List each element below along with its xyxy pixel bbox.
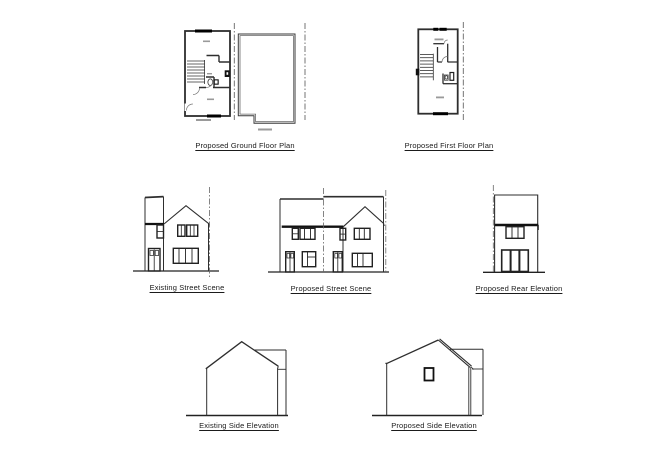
existing-side-elevation-figure xyxy=(183,333,293,425)
room-label-marks xyxy=(435,39,445,99)
roof xyxy=(145,206,209,226)
proposed-street-scene-figure xyxy=(263,185,393,280)
right-house-windows xyxy=(340,228,372,266)
ground-floor-plan-drawing xyxy=(178,14,310,132)
floor-plan-walls xyxy=(416,29,458,113)
door-swing-arc xyxy=(186,104,193,111)
proposed-rear-elevation-figure xyxy=(478,183,550,283)
rear-annex-outline xyxy=(450,349,483,415)
left-house-windows xyxy=(292,228,315,266)
caption-existing-street-scene: Existing Street Scene xyxy=(117,283,257,292)
existing-street-scene-figure xyxy=(130,183,225,283)
staircase xyxy=(420,54,433,81)
proposed-street-scene-drawing xyxy=(263,185,393,280)
rear-annex-outline xyxy=(254,350,286,416)
gable-outline xyxy=(385,339,471,416)
caption-proposed-rear-elevation: Proposed Rear Elevation xyxy=(449,284,589,293)
gable-outline xyxy=(206,342,278,416)
fixtures xyxy=(208,70,230,85)
caption-proposed-street-scene: Proposed Street Scene xyxy=(261,284,401,293)
caption-first-floor-plan: Proposed First Floor Plan xyxy=(379,141,519,150)
first-floor-plan-figure xyxy=(403,20,473,126)
right-house-door xyxy=(333,252,342,272)
front-door xyxy=(149,249,161,272)
first-floor-window xyxy=(506,227,524,239)
existing-street-scene-drawing xyxy=(130,183,225,283)
proposed-rear-elevation-drawing xyxy=(478,183,550,283)
gable-window xyxy=(425,368,434,381)
staircase xyxy=(187,60,205,84)
left-house-door xyxy=(286,252,295,272)
drawing-sheet: Proposed Ground Floor Plan xyxy=(0,0,670,469)
patio-doors xyxy=(502,250,529,272)
first-floor-plan-drawing xyxy=(403,20,473,126)
existing-side-elevation-drawing xyxy=(183,333,293,425)
proposed-side-elevation-figure xyxy=(368,333,488,425)
proposed-side-elevation-drawing xyxy=(368,333,488,425)
conservatory-outline xyxy=(238,34,295,123)
caption-ground-floor-plan: Proposed Ground Floor Plan xyxy=(175,141,315,150)
caption-proposed-side-elevation: Proposed Side Elevation xyxy=(364,421,504,430)
bathroom-fixtures xyxy=(445,73,454,81)
eaves-band xyxy=(495,225,539,230)
houses-outline xyxy=(280,197,384,272)
roof xyxy=(282,207,385,227)
caption-existing-side-elevation: Existing Side Elevation xyxy=(169,421,309,430)
ground-floor-plan-figure xyxy=(178,14,310,132)
boundary-lines xyxy=(234,23,305,120)
